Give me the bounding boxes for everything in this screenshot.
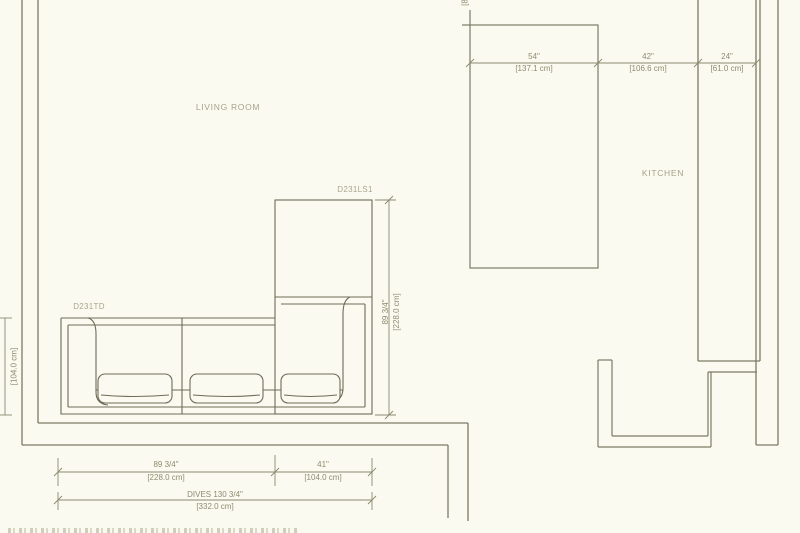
top-edge-partial-label: [8 bbox=[460, 0, 471, 10]
kitchen-counter-outline bbox=[598, 360, 757, 447]
kitchen-label: KITCHEN bbox=[642, 168, 684, 178]
chaise-section-label: D231LS1 bbox=[337, 185, 372, 194]
dim-top-1-cm: [137.1 cm] bbox=[513, 64, 554, 73]
dim-overall-label: DIVES 130 3/4" bbox=[185, 490, 245, 499]
dim-top-3-inches: 24" bbox=[719, 52, 735, 61]
dim-overall-cm: [332.0 cm] bbox=[194, 502, 235, 511]
wall-lines bbox=[22, 0, 778, 521]
floor-plan-canvas: LIVING ROOM KITCHEN D231TD D231LS1 54" [… bbox=[0, 0, 800, 533]
sofa-outline bbox=[61, 200, 372, 414]
dim-bottom-2-cm: [104.0 cm] bbox=[302, 473, 343, 482]
dim-right-cm: [228.0 cm] bbox=[391, 289, 402, 335]
dim-right-rotated: 89 3/4" [228.0 cm] bbox=[380, 289, 402, 335]
floor-plan-linework bbox=[0, 0, 800, 533]
dim-bottom-1-inches: 89 3/4" bbox=[151, 460, 180, 469]
dim-bottom-2-inches: 41" bbox=[315, 460, 331, 469]
living-room-label: LIVING ROOM bbox=[196, 102, 260, 112]
sofa-section-label: D231TD bbox=[73, 302, 105, 311]
dim-top-1-inches: 54" bbox=[526, 52, 542, 61]
bottom-cutoff-text bbox=[8, 528, 298, 533]
dim-bottom-1-cm: [228.0 cm] bbox=[145, 473, 186, 482]
kitchen-island-outline bbox=[462, 10, 598, 268]
dim-top-2-inches: 42" bbox=[640, 52, 656, 61]
dim-right-inches: 89 3/4" bbox=[380, 289, 391, 335]
dimension-lines bbox=[0, 59, 760, 510]
dim-top-2-cm: [106.6 cm] bbox=[627, 64, 668, 73]
dim-top-3-cm: [61.0 cm] bbox=[709, 64, 746, 73]
dim-left-rotated: [104.0 cm] bbox=[9, 346, 20, 388]
